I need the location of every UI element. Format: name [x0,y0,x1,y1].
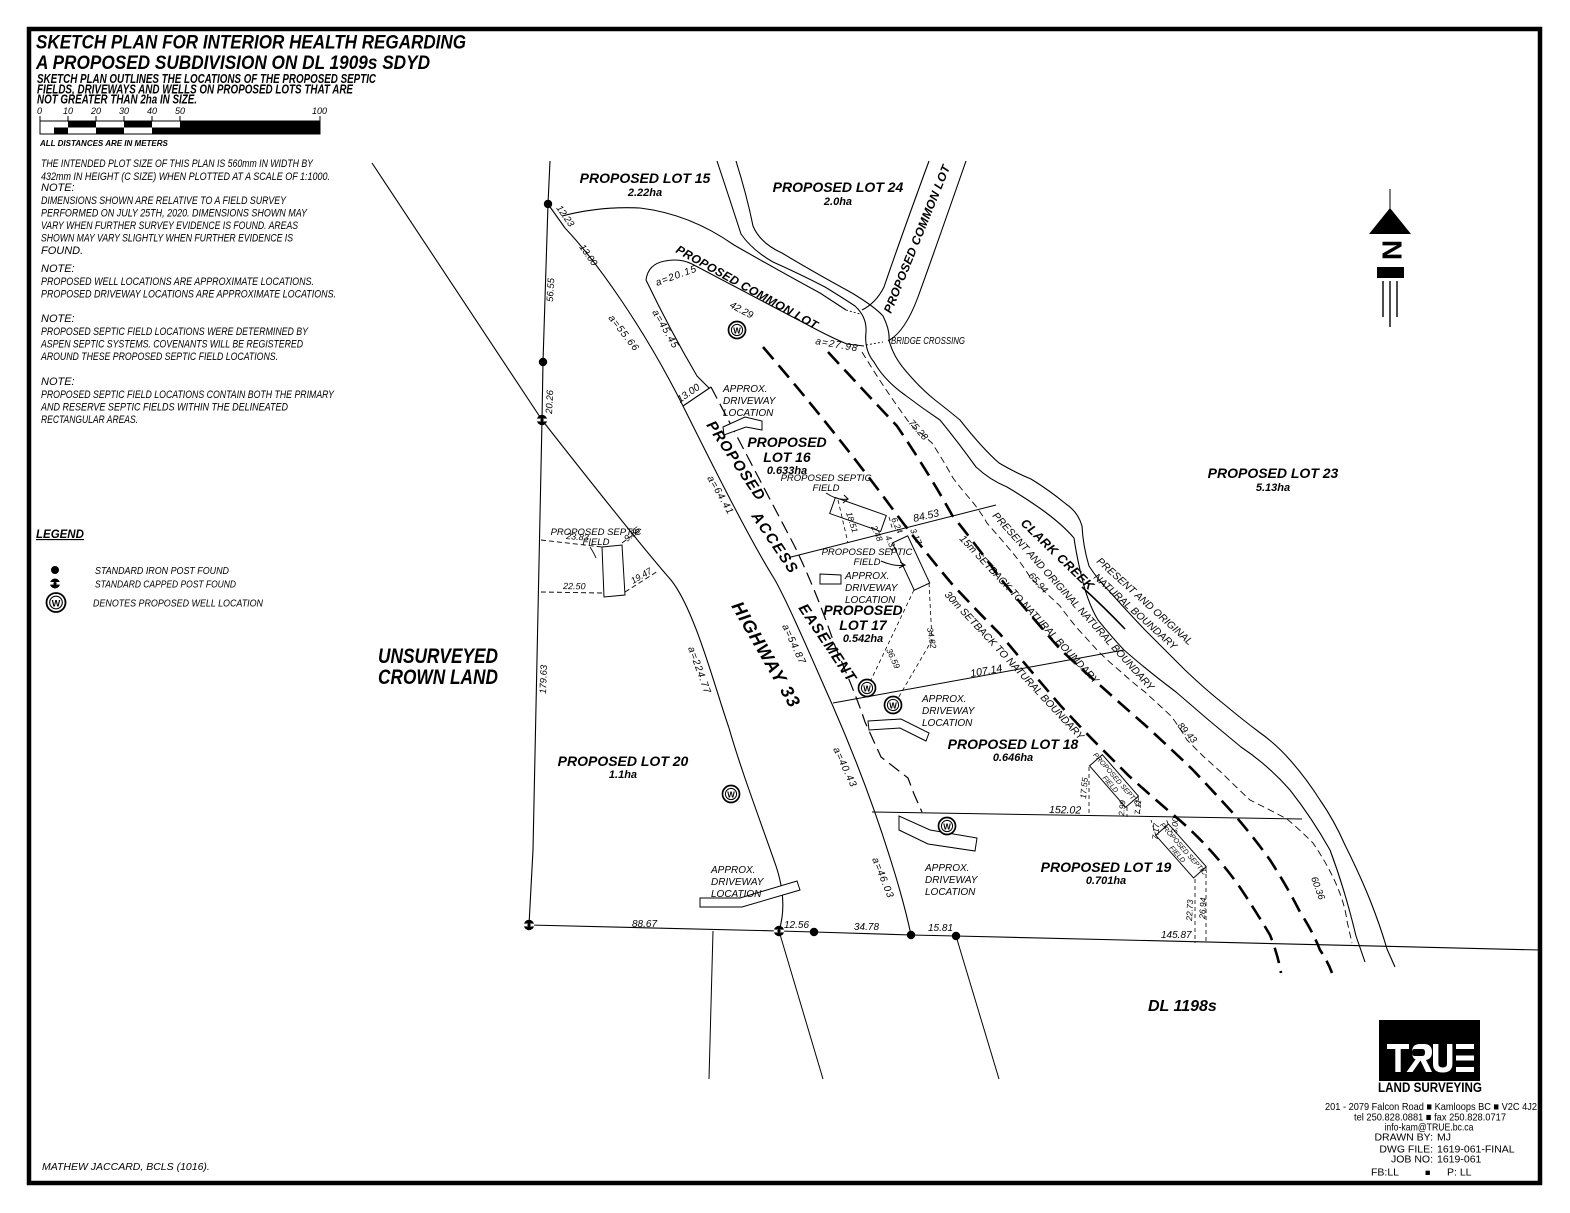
svg-text:FOUND.: FOUND. [41,245,83,257]
svg-text:AROUND THESE PROPOSED SEPTIC F: AROUND THESE PROPOSED SEPTIC FIELD LOCAT… [40,351,278,363]
svg-text:PROPOSED: PROPOSED [823,602,902,618]
svg-text:APPROX.: APPROX. [921,694,966,705]
svg-text:22.50: 22.50 [562,581,586,591]
svg-text:DRIVEWAY: DRIVEWAY [723,396,777,407]
svg-text:DRAWN BY:: DRAWN BY: [1374,1132,1433,1144]
svg-text:0: 0 [37,106,42,116]
svg-text:FB:LL: FB:LL [1371,1167,1399,1179]
svg-text:2.99: 2.99 [1117,799,1127,817]
svg-text:W: W [863,685,871,694]
svg-text:15.81: 15.81 [928,923,953,934]
svg-text:17.55: 17.55 [1078,777,1090,799]
svg-text:5.13ha: 5.13ha [1256,482,1290,494]
svg-text:STANDARD CAPPED POST FOUND: STANDARD CAPPED POST FOUND [95,579,236,591]
svg-text:7.17: 7.17 [1150,823,1161,841]
svg-text:DRIVEWAY: DRIVEWAY [925,875,979,886]
svg-text:LAND SURVEYING: LAND SURVEYING [1378,1080,1482,1095]
svg-text:VARY WHEN FURTHER SURVEY EVIDE: VARY WHEN FURTHER SURVEY EVIDENCE IS FOU… [41,220,299,232]
svg-text:UNSURVEYED: UNSURVEYED [378,645,498,668]
svg-text:PROPOSED: PROPOSED [747,434,826,450]
svg-text:2.22ha: 2.22ha [627,187,662,199]
svg-text:LOCATION: LOCATION [922,718,973,729]
svg-text:LEGEND: LEGEND [36,529,84,541]
svg-text:26.94: 26.94 [1197,897,1208,920]
svg-text:ASPEN SEPTIC SYSTEMS. COVENANT: ASPEN SEPTIC SYSTEMS. COVENANTS WILL BE … [40,339,303,351]
svg-text:PROPOSED LOT 20: PROPOSED LOT 20 [558,753,689,769]
svg-text:W: W [727,791,735,800]
svg-text:DRIVEWAY: DRIVEWAY [711,877,765,888]
svg-text:145.87: 145.87 [1161,930,1192,941]
svg-text:N: N [1377,240,1408,260]
svg-text:MATHEW JACCARD, BCLS (1016).: MATHEW JACCARD, BCLS (1016). [42,1161,210,1173]
svg-text:DRIVEWAY: DRIVEWAY [845,583,899,594]
svg-text:W: W [52,599,61,609]
svg-text:20: 20 [90,106,101,116]
svg-text:LOCATION: LOCATION [711,889,762,900]
svg-text:LOCATION: LOCATION [925,887,976,898]
svg-text:NOTE:: NOTE: [41,313,75,325]
svg-text:NOTE:: NOTE: [41,263,75,275]
svg-text:NOT GREATER THAN 2ha IN SIZE.: NOT GREATER THAN 2ha IN SIZE. [37,93,197,107]
svg-text:34.78: 34.78 [854,922,879,933]
svg-text:1619-061: 1619-061 [1437,1154,1482,1166]
svg-text:56.55: 56.55 [545,277,557,302]
svg-text:100: 100 [312,106,327,116]
svg-text:BRIDGE CROSSING: BRIDGE CROSSING [891,336,965,347]
svg-text:W: W [943,823,951,832]
svg-text:3.00: 3.00 [1169,817,1180,835]
svg-text:1.1ha: 1.1ha [609,769,637,781]
svg-text:SKETCH PLAN FOR INTERIOR HEALT: SKETCH PLAN FOR INTERIOR HEALTH REGARDIN… [36,32,466,54]
svg-text:A PROPOSED SUBDIVISION ON DL 1: A PROPOSED SUBDIVISION ON DL 1909s SDYD [35,52,430,74]
svg-text:STANDARD IRON POST FOUND: STANDARD IRON POST FOUND [95,565,229,577]
svg-text:0.646ha: 0.646ha [993,752,1033,764]
svg-text:■: ■ [1425,1168,1430,1178]
svg-text:DENOTES PROPOSED WELL LOCATION: DENOTES PROPOSED WELL LOCATION [93,598,263,610]
svg-text:MJ: MJ [1437,1132,1451,1144]
svg-text:AND RESERVE SEPTIC FIELDS WITH: AND RESERVE SEPTIC FIELDS WITHIN THE DEL… [40,402,288,414]
svg-text:W: W [889,702,897,711]
svg-text:22.73: 22.73 [1184,899,1195,922]
svg-text:CROWN LAND: CROWN LAND [378,666,498,689]
svg-text:LOT 17: LOT 17 [839,617,888,633]
svg-text:NOTE:: NOTE: [41,182,75,194]
svg-text:PROPOSED LOT 24: PROPOSED LOT 24 [773,179,904,195]
svg-text:PROPOSED WELL LOCATIONS ARE AP: PROPOSED WELL LOCATIONS ARE APPROXIMATE … [41,276,314,288]
svg-text:12.56: 12.56 [784,920,809,931]
svg-text:RECTANGULAR AREAS.: RECTANGULAR AREAS. [41,414,138,426]
svg-text:50: 50 [175,106,185,116]
svg-text:LOT 16: LOT 16 [763,449,811,465]
svg-text:APPROX.: APPROX. [924,863,969,874]
svg-text:0.542ha: 0.542ha [843,633,883,645]
svg-text:PROPOSED LOT 19: PROPOSED LOT 19 [1041,859,1172,875]
svg-text:PERFORMED ON JULY 25TH, 2020.: PERFORMED ON JULY 25TH, 2020. DIMENSIONS… [41,208,308,220]
svg-text:23.83: 23.83 [565,531,589,543]
svg-text:PROPOSED SEPTIC FIELD LOCATION: PROPOSED SEPTIC FIELD LOCATIONS CONTAIN … [41,389,335,401]
svg-text:0.701ha: 0.701ha [1086,875,1126,887]
svg-text:2.0ha: 2.0ha [823,196,852,208]
svg-text:APPROX.: APPROX. [722,384,767,395]
svg-text:FIELD: FIELD [813,483,840,494]
svg-text:152.02: 152.02 [1049,804,1081,817]
svg-text:W: W [733,327,741,336]
svg-text:APPROX.: APPROX. [710,865,755,876]
svg-text:88.67: 88.67 [632,919,657,930]
svg-text:20.26: 20.26 [544,389,556,415]
svg-text:PROPOSED LOT 23: PROPOSED LOT 23 [1208,465,1339,481]
svg-text:PROPOSED SEPTIC FIELD LOCATION: PROPOSED SEPTIC FIELD LOCATIONS WERE DET… [41,326,309,338]
svg-text:APPROX.: APPROX. [844,571,889,582]
svg-text:40: 40 [147,106,157,116]
svg-text:FIELD: FIELD [854,557,881,568]
svg-text:30: 30 [119,106,129,116]
svg-text:LOCATION: LOCATION [723,408,774,419]
svg-text:179.63: 179.63 [538,664,550,694]
svg-text:DRIVEWAY: DRIVEWAY [922,706,976,717]
svg-text:7.11: 7.11 [1133,799,1143,815]
svg-text:PROPOSED LOT 15: PROPOSED LOT 15 [580,170,711,186]
svg-text:DL 1198s: DL 1198s [1148,998,1217,1015]
svg-text:10: 10 [63,106,73,116]
svg-text:THE INTENDED PLOT SIZE OF THIS: THE INTENDED PLOT SIZE OF THIS PLAN IS 5… [41,158,314,170]
svg-text:PROPOSED LOT 18: PROPOSED LOT 18 [948,736,1079,752]
svg-text:0.633ha: 0.633ha [767,465,807,477]
svg-text:PROPOSED DRIVEWAY LOCATIONS AR: PROPOSED DRIVEWAY LOCATIONS ARE APPROXIM… [41,289,336,301]
svg-text:NOTE:: NOTE: [41,376,75,388]
svg-text:SHOWN MAY VARY SLIGHTLY WHEN F: SHOWN MAY VARY SLIGHTLY WHEN FURTHER EVI… [41,233,294,245]
svg-text:432mm IN HEIGHT (C SIZE) WHEN: 432mm IN HEIGHT (C SIZE) WHEN PLOTTED AT… [41,171,330,183]
svg-text:P: LL: P: LL [1447,1167,1472,1179]
svg-text:JOB NO:: JOB NO: [1391,1154,1433,1166]
svg-text:DIMENSIONS SHOWN ARE RELATIVE: DIMENSIONS SHOWN ARE RELATIVE TO A FIELD… [41,195,287,207]
svg-text:ALL DISTANCES ARE IN METERS: ALL DISTANCES ARE IN METERS [39,139,169,148]
